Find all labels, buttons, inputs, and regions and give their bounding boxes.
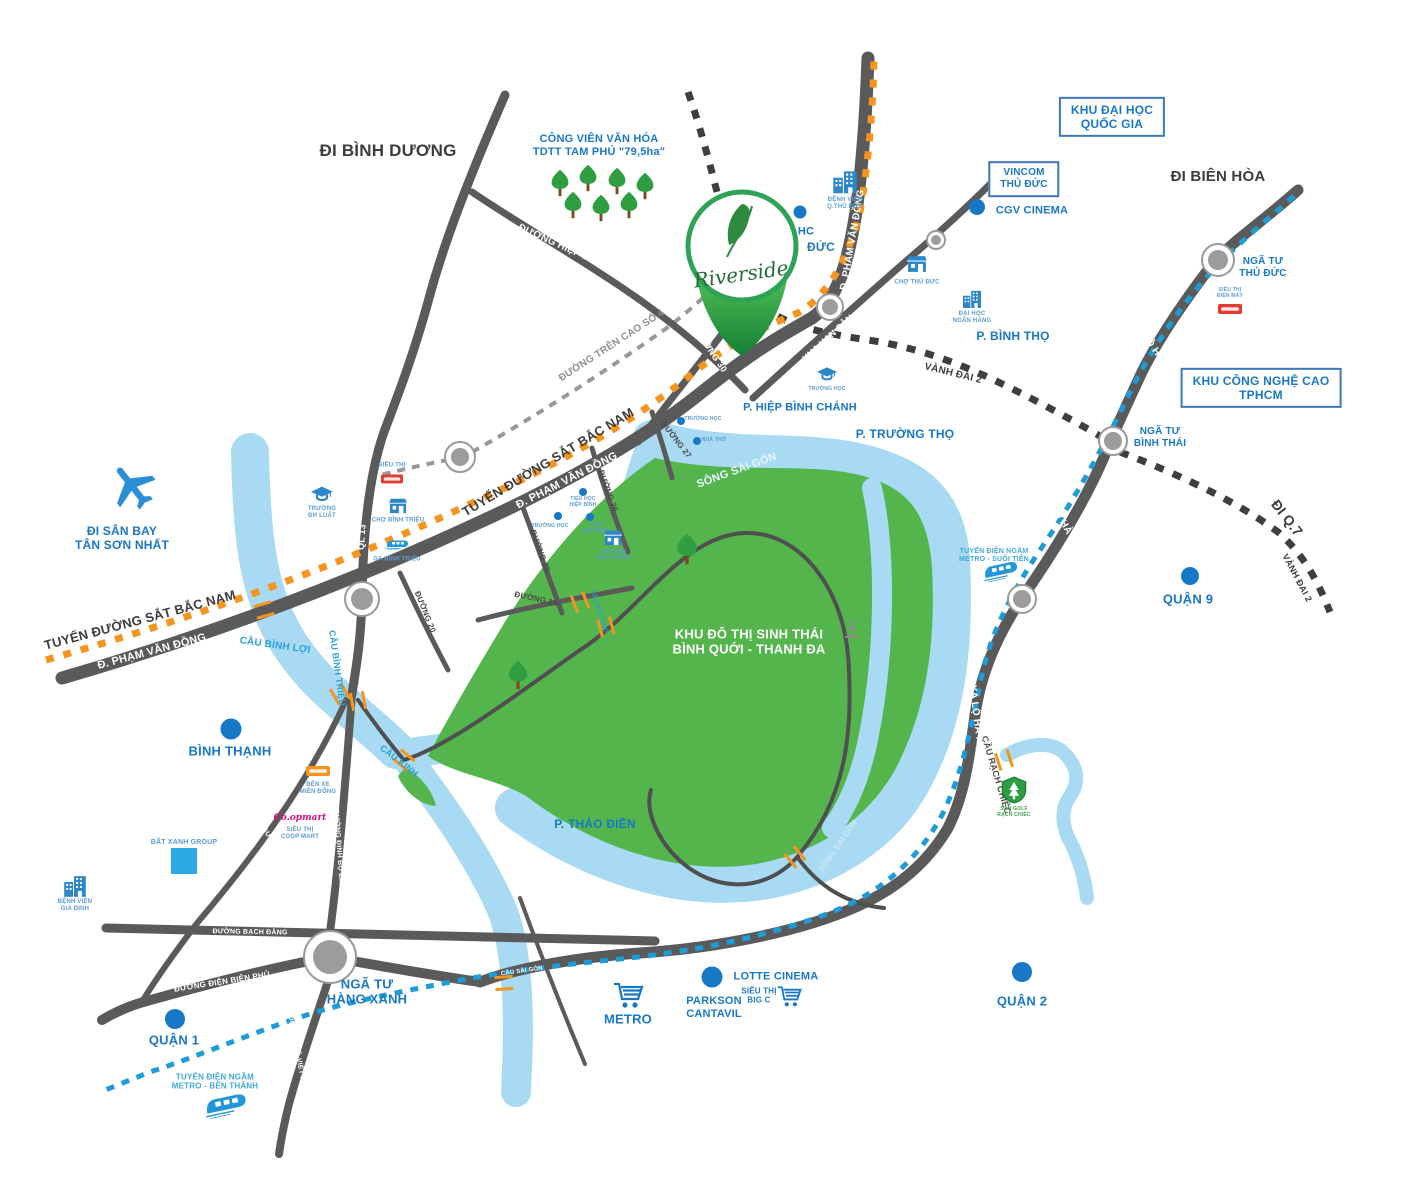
road-dien-bien-phu <box>102 957 480 1020</box>
road-duong-20 <box>400 573 448 670</box>
road-xo-viet-nghe-tinh <box>279 975 330 1154</box>
map-geometry: Riverside <box>0 0 1420 1200</box>
map-canvas: Riverside ĐI BÌNH DƯƠNGĐI BIÊN HÒAĐI Q.7… <box>0 0 1420 1200</box>
